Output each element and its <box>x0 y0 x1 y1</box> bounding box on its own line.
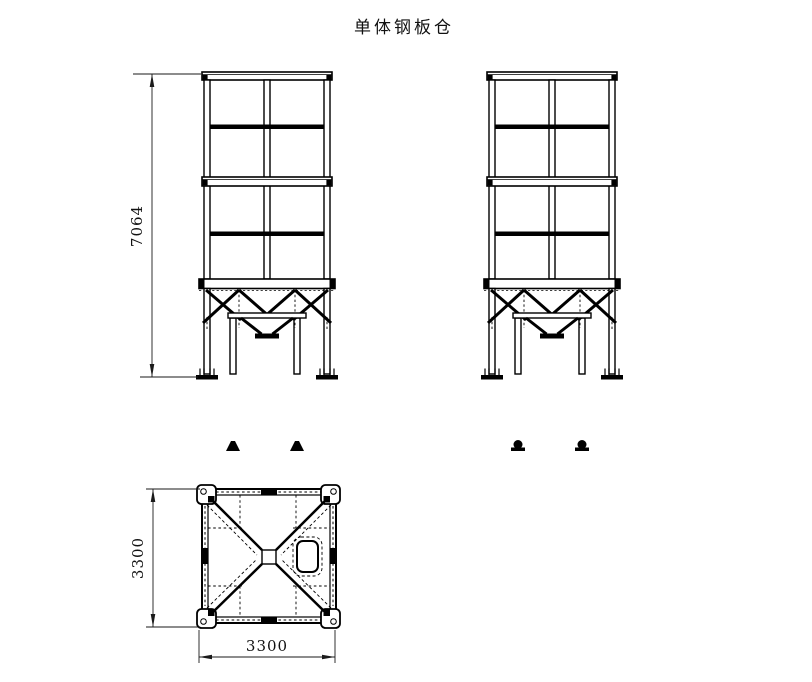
side-elevation-view <box>481 72 623 451</box>
side-inner-feet <box>511 440 589 451</box>
arrowhead-left <box>199 655 212 660</box>
arrowhead-down <box>151 614 156 627</box>
drawing-canvas: 单体钢板仓 7064 <box>0 0 812 682</box>
discharge-opening <box>262 550 276 564</box>
plan-depth-label: 3300 <box>129 537 147 579</box>
drawing-title: 单体钢板仓 <box>354 18 454 38</box>
plan-depth-dimension <box>146 489 200 627</box>
plan-view <box>197 485 340 628</box>
arrowhead-up <box>151 489 156 502</box>
plan-width-label: 3300 <box>246 637 288 655</box>
arrowhead-up <box>150 74 155 87</box>
arrowhead-right <box>322 655 335 660</box>
height-dimension-label: 7064 <box>128 205 146 247</box>
front-elevation-view <box>196 72 338 451</box>
front-inner-feet <box>226 441 304 451</box>
drawing-sheet: 单体钢板仓 7064 <box>0 0 812 682</box>
arrowhead-down <box>150 364 155 377</box>
